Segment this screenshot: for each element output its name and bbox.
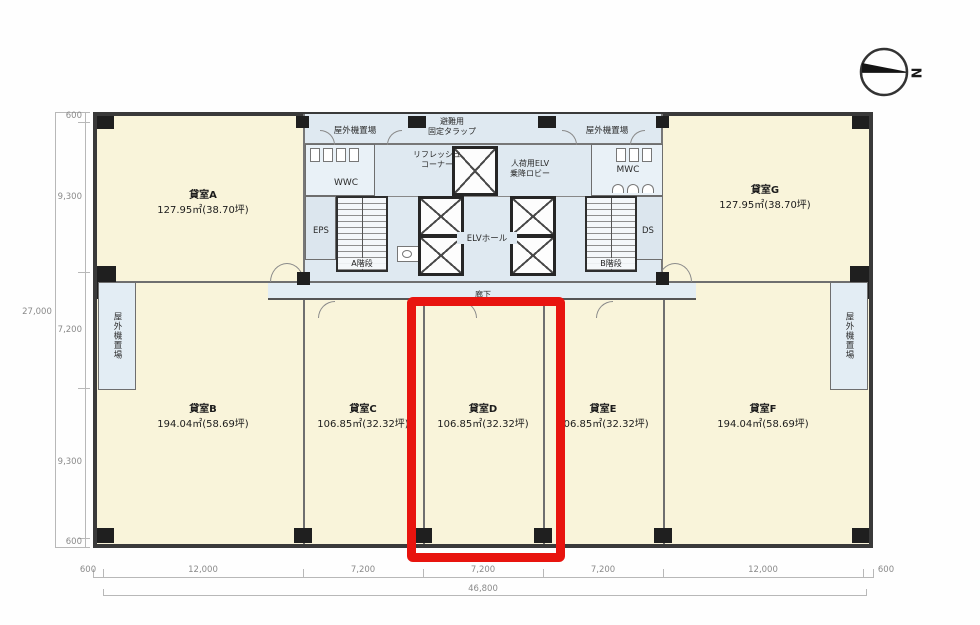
sink-icon: [402, 250, 412, 258]
dimension-tick: [866, 589, 867, 596]
escape-hatch-label: 避難用 固定タラップ: [416, 117, 488, 138]
pillar: [97, 116, 114, 129]
dim-left-600-bottom: 600: [56, 537, 82, 547]
compass: N: [852, 40, 924, 104]
dimension-tick: [863, 569, 864, 578]
pillar: [294, 528, 312, 543]
compass-needle-icon: [862, 63, 908, 73]
room-e-area: 106.85㎡(32.32坪): [523, 415, 683, 430]
room-f: 貸室F 194.04㎡(58.69坪): [683, 400, 843, 430]
stair-b-label: B階段: [587, 258, 635, 269]
dim-bottom-12000-left: 12,000: [153, 565, 253, 575]
floor-plan-page: N 屋外機置場 屋外機置場: [0, 0, 980, 625]
dimension-tick: [78, 122, 90, 123]
room-f-name: 貸室F: [683, 400, 843, 415]
room-g: 貸室G 127.95㎡(38.70坪): [685, 181, 845, 211]
pillar: [414, 528, 432, 543]
room-b-area: 194.04㎡(58.69坪): [123, 415, 283, 430]
wwc-label: WWC: [318, 178, 374, 188]
pillar: [656, 116, 669, 128]
outdoor-unit-right-label: 屋外機置場: [843, 312, 855, 360]
mwc-label: MWC: [600, 165, 656, 175]
dim-bottom-7200-c: 7,200: [313, 565, 413, 575]
dimension-tick: [423, 569, 424, 578]
stair-a-block: A階段: [336, 196, 388, 272]
outdoor-unit-top-left-label: 屋外機置場: [307, 124, 403, 136]
corridor-label: 廊下: [467, 289, 499, 300]
dim-left-7200: 7,200: [48, 325, 82, 335]
toilet-stall-icon: [349, 148, 359, 162]
dim-bottom-total: 46,800: [443, 584, 523, 594]
room-e: 貸室E 106.85㎡(32.32坪): [523, 400, 683, 430]
dimension-tick: [103, 569, 104, 578]
dim-left-9300-bottom: 9,300: [48, 457, 82, 467]
eps-label: EPS: [305, 226, 337, 236]
compass-north-label: N: [908, 68, 923, 79]
dimension-tick: [78, 388, 90, 389]
dim-bottom-7200-e: 7,200: [553, 565, 653, 575]
elevator-shaft: [510, 196, 556, 237]
ds-label: DS: [634, 226, 662, 236]
dimension-tick: [55, 547, 85, 548]
dim-bottom-600-left: 600: [74, 565, 102, 575]
pillar: [654, 528, 672, 543]
toilet-stall-icon: [310, 148, 320, 162]
sink-icon: [627, 184, 639, 193]
elv-hall-label: ELVホール: [457, 232, 517, 244]
toilet-stall-icon: [629, 148, 639, 162]
pillar: [297, 272, 310, 285]
toilet-stall-icon: [642, 148, 652, 162]
dimension-line-bottom: [93, 577, 874, 578]
dim-bottom-600-right: 600: [872, 565, 900, 575]
toilet-stall-icon: [336, 148, 346, 162]
dimension-total-line-bottom: [103, 595, 867, 596]
pillar: [656, 272, 669, 285]
sink-icon: [642, 184, 654, 193]
refresh-corner-label: リフレッシュ コーナー: [401, 150, 473, 171]
dimension-line-left: [85, 112, 86, 548]
outdoor-unit-bay-left: 屋外機置場: [98, 282, 136, 390]
room-b-name: 貸室B: [123, 400, 283, 415]
dimension-tick: [543, 569, 544, 578]
dim-left-total: 27,000: [20, 307, 54, 317]
toilet-stall-icon: [616, 148, 626, 162]
room-f-area: 194.04㎡(58.69坪): [683, 415, 843, 430]
sink-icon: [612, 184, 624, 193]
dimension-tick: [663, 569, 664, 578]
dim-left-600-top: 600: [56, 111, 82, 121]
room-b: 貸室B 194.04㎡(58.69坪): [123, 400, 283, 430]
room-a: 貸室A 127.95㎡(38.70坪): [123, 186, 283, 216]
dim-left-9300-top: 9,300: [48, 192, 82, 202]
dimension-tick: [103, 589, 104, 596]
dim-bottom-7200-d: 7,200: [433, 565, 533, 575]
stair-a-label: A階段: [338, 258, 386, 269]
dimension-tick: [78, 272, 90, 273]
outdoor-unit-top-right-label: 屋外機置場: [559, 124, 655, 136]
pillar: [852, 116, 869, 129]
pillar: [852, 528, 869, 543]
outdoor-unit-left-label: 屋外機置場: [111, 312, 123, 360]
pillar: [538, 116, 556, 128]
room-g-area: 127.95㎡(38.70坪): [685, 196, 845, 211]
dim-bottom-12000-right: 12,000: [713, 565, 813, 575]
elevator-shaft: [418, 196, 464, 237]
stair-b-block: B階段: [585, 196, 637, 272]
room-a-name: 貸室A: [123, 186, 283, 201]
room-e-name: 貸室E: [523, 400, 683, 415]
outdoor-unit-bay-right: 屋外機置場: [830, 282, 868, 390]
room-g-name: 貸室G: [685, 181, 845, 196]
toilet-stall-icon: [323, 148, 333, 162]
service-elv-lobby-label: 人荷用ELV 乗降ロビー: [492, 159, 568, 180]
pillar: [97, 528, 114, 543]
pillar: [534, 528, 552, 543]
dimension-tick: [303, 569, 304, 578]
room-a-area: 127.95㎡(38.70坪): [123, 201, 283, 216]
